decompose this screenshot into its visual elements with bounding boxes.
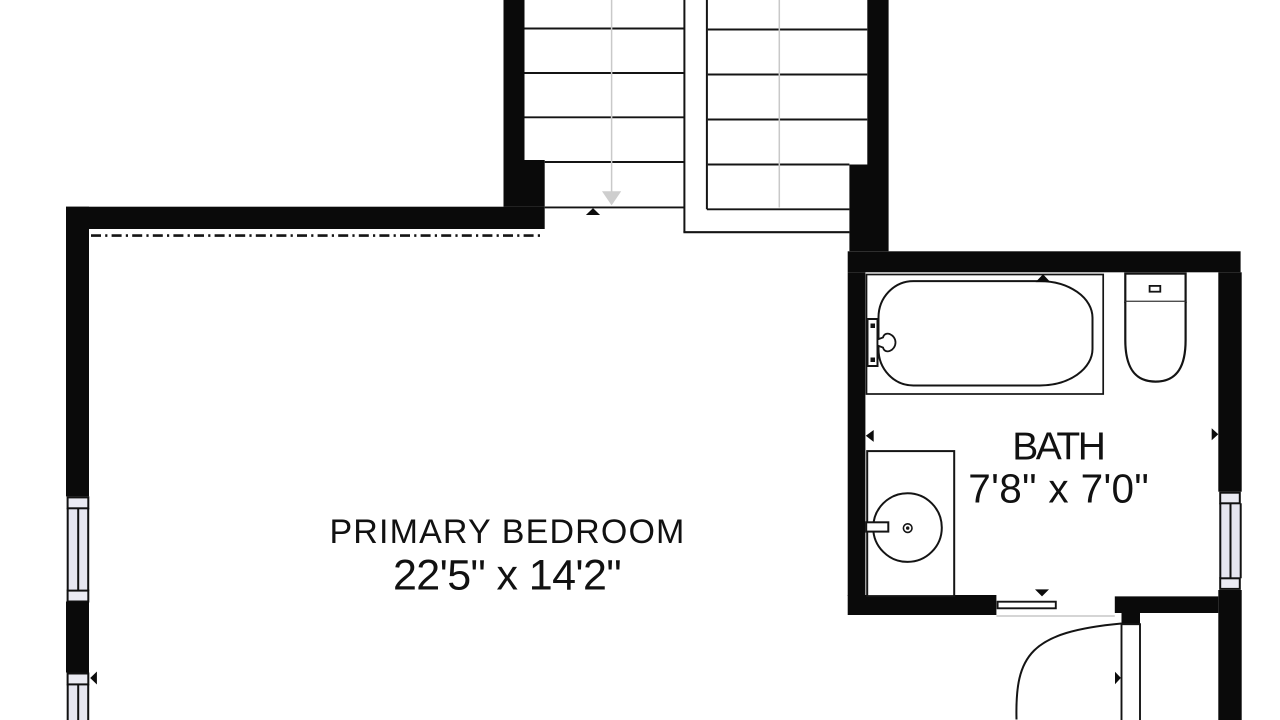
svg-text:PRIMARY BEDROOM: PRIMARY BEDROOM: [329, 513, 685, 551]
svg-text:BATH: BATH: [1012, 425, 1103, 468]
svg-text:7'8" x 7'0": 7'8" x 7'0": [968, 465, 1149, 511]
svg-text:22'5" x 14'2": 22'5" x 14'2": [393, 551, 621, 599]
